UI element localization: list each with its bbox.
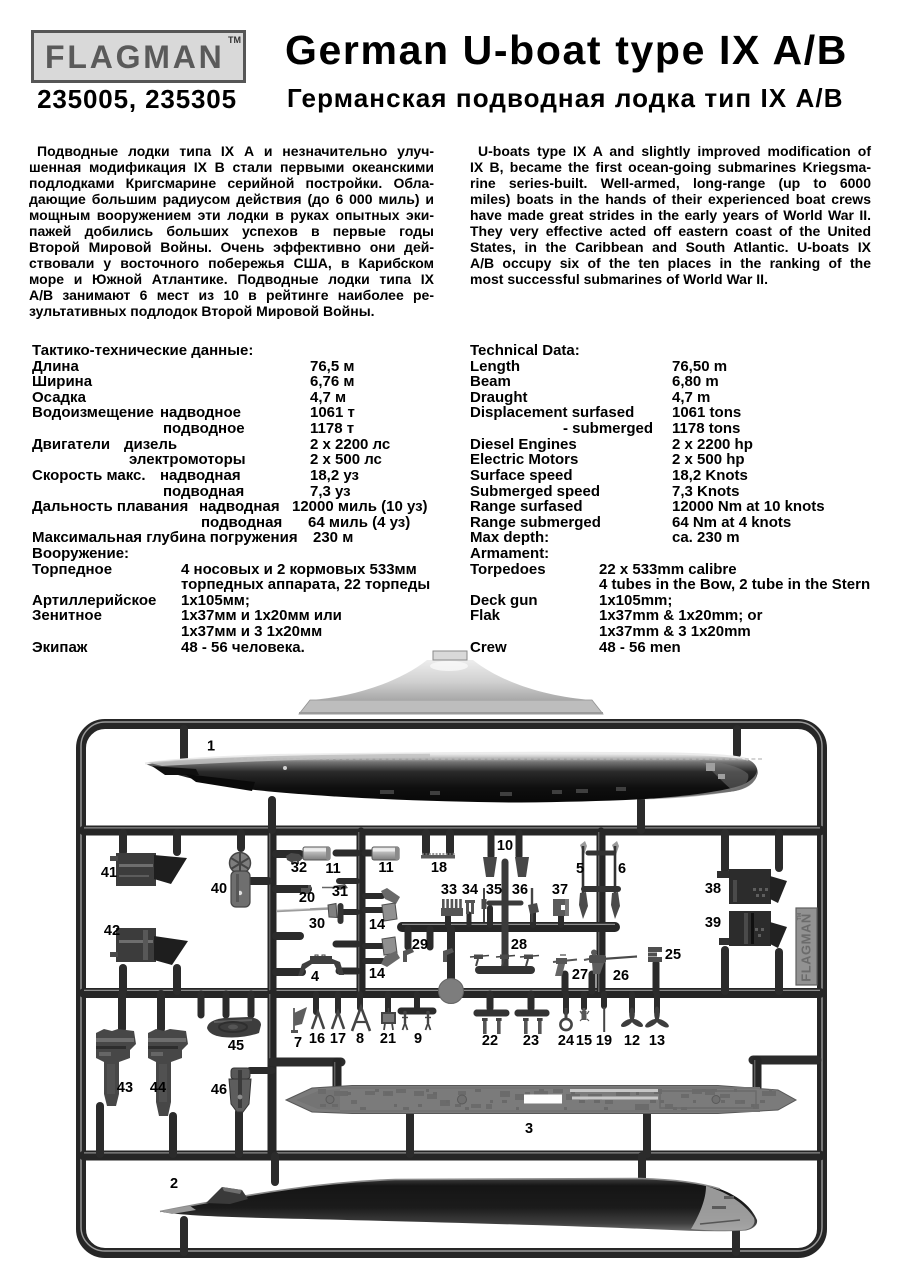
svg-text:TM: TM [797,913,803,920]
svg-text:42: 42 [104,923,120,939]
svg-text:23: 23 [523,1033,539,1049]
svg-text:4: 4 [311,969,319,985]
svg-text:27: 27 [572,967,588,983]
svg-text:39: 39 [705,915,721,931]
svg-text:41: 41 [101,865,117,881]
svg-text:25: 25 [665,947,681,963]
svg-text:31: 31 [332,884,348,900]
svg-text:43: 43 [117,1080,133,1096]
svg-text:3: 3 [525,1121,533,1137]
svg-text:11: 11 [325,861,340,877]
svg-text:FLAGMAN: FLAGMAN [799,913,814,982]
svg-text:15: 15 [576,1033,592,1049]
svg-text:1: 1 [207,739,215,755]
svg-text:18: 18 [431,860,447,876]
svg-text:13: 13 [649,1033,665,1049]
svg-text:21: 21 [380,1031,396,1047]
svg-text:5: 5 [576,861,584,877]
svg-text:14: 14 [369,917,385,933]
svg-text:30: 30 [309,916,325,932]
svg-text:29: 29 [412,937,428,953]
svg-text:26: 26 [613,968,629,984]
svg-text:20: 20 [299,890,315,906]
svg-text:33: 33 [441,882,457,898]
svg-text:7: 7 [294,1035,302,1051]
svg-text:19: 19 [596,1033,612,1049]
svg-text:11: 11 [378,860,393,876]
svg-text:9: 9 [414,1031,422,1047]
svg-text:37: 37 [552,882,568,898]
svg-text:40: 40 [211,881,227,897]
svg-text:44: 44 [150,1080,166,1096]
svg-text:22: 22 [482,1033,498,1049]
svg-text:34: 34 [462,882,478,898]
svg-text:28: 28 [511,937,527,953]
svg-text:46: 46 [211,1082,227,1098]
svg-text:10: 10 [497,838,513,854]
svg-text:24: 24 [558,1033,574,1049]
svg-text:14: 14 [369,966,385,982]
svg-text:2: 2 [170,1176,178,1192]
svg-text:35: 35 [486,882,502,898]
svg-text:32: 32 [291,860,307,876]
svg-text:16: 16 [309,1031,325,1047]
svg-text:36: 36 [512,882,528,898]
svg-text:8: 8 [356,1031,364,1047]
svg-text:45: 45 [228,1038,244,1054]
svg-text:6: 6 [618,861,626,877]
svg-text:38: 38 [705,881,721,897]
svg-text:17: 17 [330,1031,346,1047]
svg-text:12: 12 [624,1033,640,1049]
